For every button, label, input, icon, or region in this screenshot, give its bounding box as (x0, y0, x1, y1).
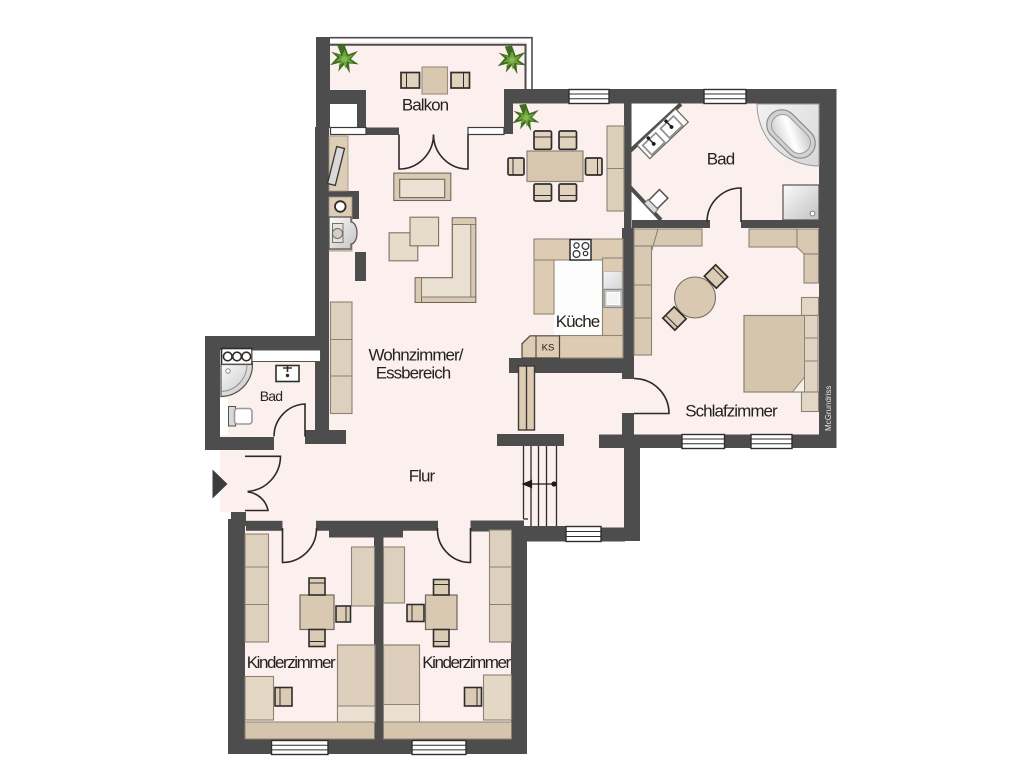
svg-text:Bad: Bad (707, 150, 735, 169)
svg-text:Flur: Flur (409, 467, 436, 486)
svg-text:Balkon: Balkon (402, 96, 449, 115)
svg-text:Küche: Küche (556, 312, 600, 331)
svg-text:Schlafzimmer: Schlafzimmer (685, 402, 778, 421)
svg-text:Essbereich: Essbereich (376, 364, 451, 383)
svg-text:Kinderzimmer: Kinderzimmer (422, 653, 511, 672)
svg-text:Wohnzimmer/: Wohnzimmer/ (368, 346, 463, 365)
svg-text:KS: KS (542, 343, 555, 354)
svg-text:Bad: Bad (260, 388, 283, 404)
svg-text:Kinderzimmer: Kinderzimmer (247, 653, 336, 672)
svg-text:McGrundriss: McGrundriss (824, 386, 833, 431)
